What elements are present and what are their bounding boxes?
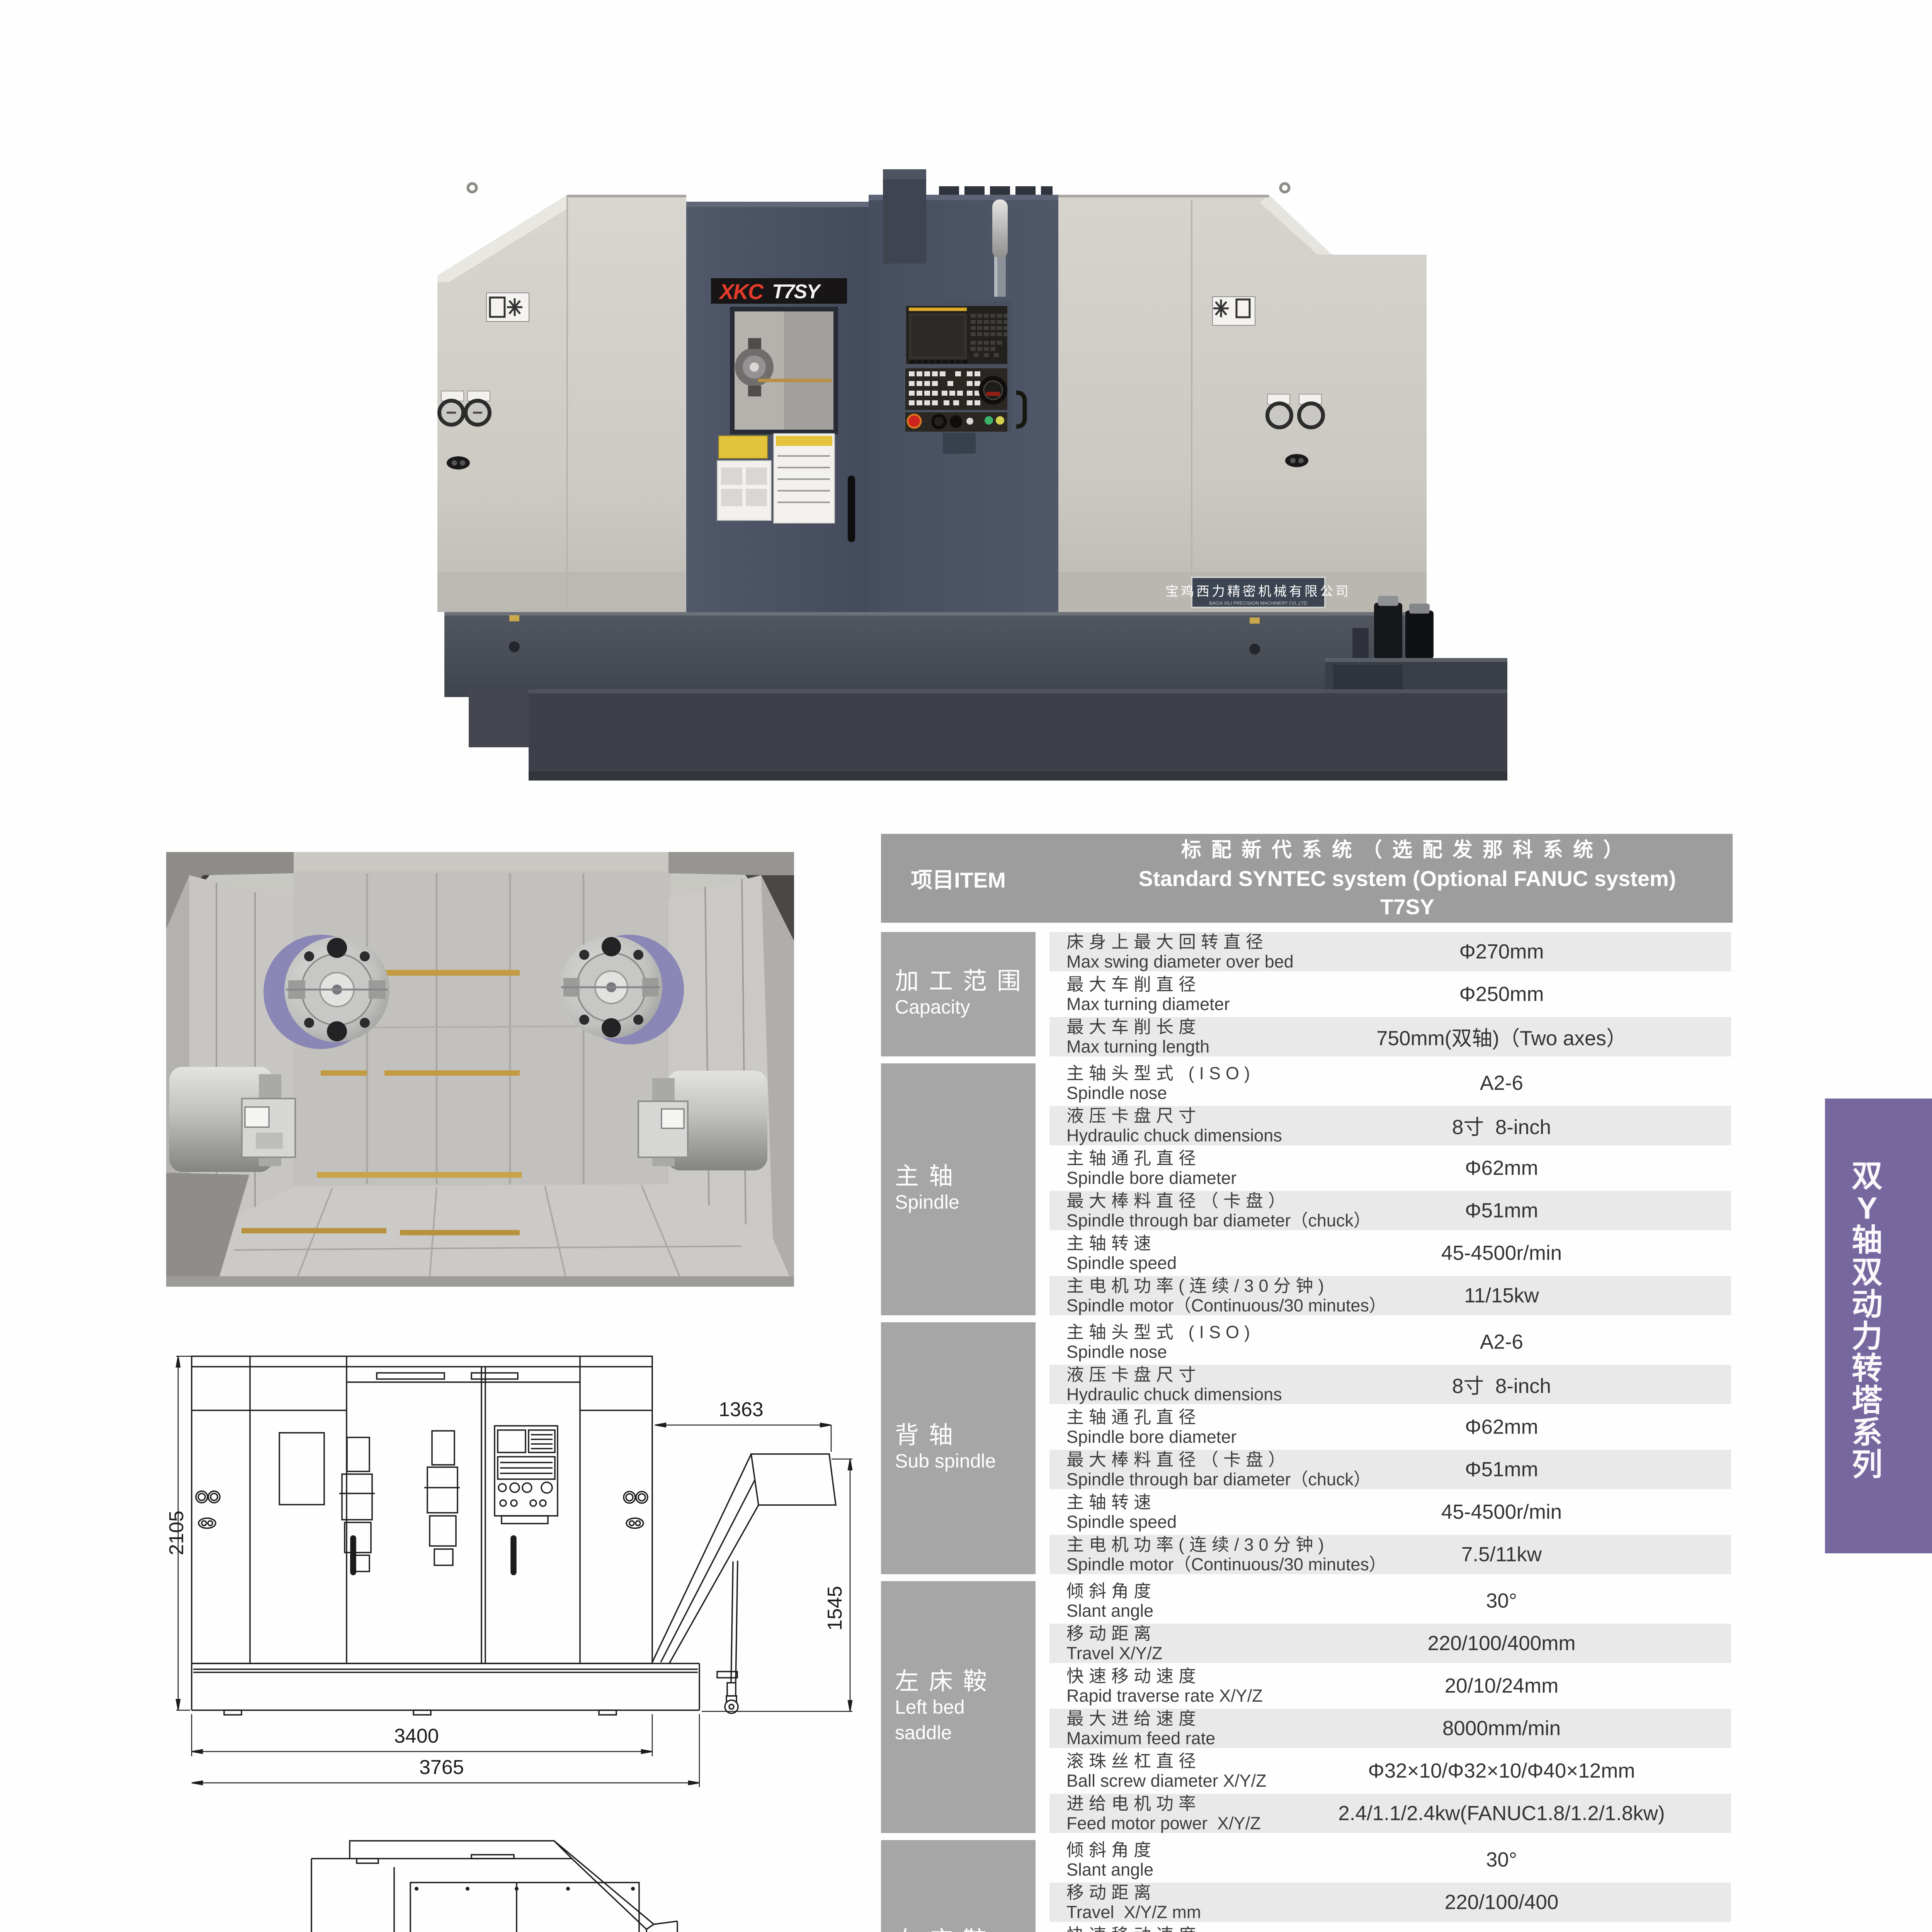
svg-text:3765: 3765 [419,1756,464,1779]
svg-text:1363: 1363 [719,1398,764,1421]
svg-text:2105: 2105 [166,1510,188,1555]
svg-text:XKC: XKC [718,279,764,304]
svg-text:T7SY: T7SY [772,281,821,303]
svg-text:3400: 3400 [394,1725,439,1747]
svg-text:宝鸡西力精密机械有限公司: 宝鸡西力精密机械有限公司 [1165,584,1351,599]
svg-text:BAOJI XILI PRECISION MACHINERY: BAOJI XILI PRECISION MACHINERY CO.,LTD [1209,600,1307,606]
svg-text:1545: 1545 [824,1586,846,1631]
